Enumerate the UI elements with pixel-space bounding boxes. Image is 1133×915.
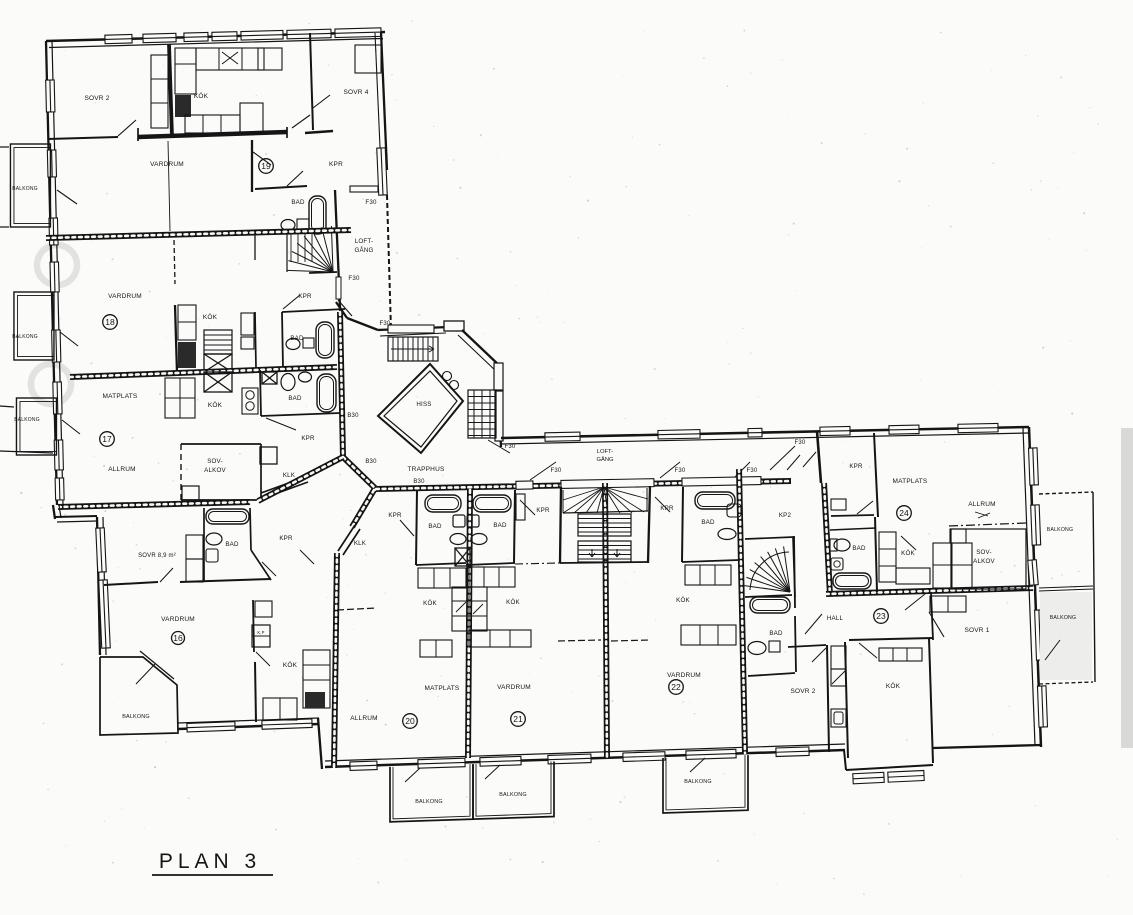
svg-text:SOV-: SOV- [976, 549, 992, 556]
svg-text:SOV-: SOV- [207, 458, 223, 465]
svg-text:21: 21 [513, 714, 523, 724]
svg-text:BAD: BAD [852, 545, 866, 552]
svg-text:PLAN 3: PLAN 3 [159, 850, 261, 873]
svg-text:22: 22 [671, 682, 681, 692]
svg-text:BALKONG: BALKONG [1050, 615, 1076, 621]
svg-text:VARDRUM: VARDRUM [161, 616, 195, 623]
svg-text:19: 19 [261, 161, 271, 171]
svg-text:F30: F30 [505, 444, 516, 450]
svg-text:GÅNG: GÅNG [596, 456, 614, 463]
svg-text:F30: F30 [551, 468, 562, 474]
svg-text:SOVR 8,9 m²: SOVR 8,9 m² [138, 553, 176, 559]
svg-text:BALKONG: BALKONG [415, 799, 442, 805]
svg-text:LOFT-: LOFT- [597, 449, 613, 455]
svg-text:KLK: KLK [283, 472, 296, 479]
svg-text:TRAPPHUS: TRAPPHUS [408, 466, 445, 473]
svg-text:BALKONG: BALKONG [684, 779, 711, 785]
svg-text:BAD: BAD [288, 395, 302, 402]
svg-text:KPR: KPR [301, 435, 315, 442]
svg-text:KÖK: KÖK [886, 682, 901, 690]
svg-text:BALKONG: BALKONG [1047, 527, 1073, 533]
svg-text:SOVR 1: SOVR 1 [964, 627, 989, 634]
svg-text:VARDRUM: VARDRUM [497, 684, 531, 691]
svg-text:B30: B30 [413, 479, 425, 485]
svg-text:SOVR 2: SOVR 2 [790, 688, 815, 695]
svg-text:MATPLATS: MATPLATS [103, 393, 138, 400]
svg-text:B30: B30 [365, 459, 377, 465]
svg-text:SOVR 2: SOVR 2 [84, 95, 109, 102]
svg-text:MATPLATS: MATPLATS [425, 685, 460, 692]
svg-text:KÖK: KÖK [208, 401, 223, 409]
svg-text:23: 23 [876, 611, 886, 621]
svg-text:KÖK: KÖK [423, 600, 437, 607]
svg-text:BAD: BAD [225, 541, 239, 548]
svg-text:VARDRUM: VARDRUM [108, 293, 142, 300]
svg-text:KÖK: KÖK [506, 599, 520, 606]
svg-text:BALKONG: BALKONG [12, 186, 38, 192]
svg-text:F30: F30 [348, 275, 360, 282]
svg-text:VARDRUM: VARDRUM [667, 672, 701, 679]
svg-text:BALKONG: BALKONG [122, 714, 149, 720]
svg-text:HALL: HALL [827, 615, 844, 622]
svg-text:BALKONG: BALKONG [499, 792, 526, 798]
svg-text:BALKONG: BALKONG [12, 334, 38, 340]
svg-text:ALLRUM: ALLRUM [968, 501, 996, 508]
svg-text:KPR: KPR [388, 512, 402, 519]
svg-text:ALKOV: ALKOV [204, 467, 226, 474]
svg-text:F30: F30 [365, 199, 377, 206]
svg-text:KPR: KPR [298, 293, 312, 300]
svg-text:BALKONG: BALKONG [14, 417, 40, 423]
svg-text:KPR: KPR [329, 161, 343, 168]
svg-text:ALLRUM: ALLRUM [108, 466, 136, 473]
svg-text:KP2: KP2 [779, 512, 792, 519]
svg-text:HISS: HISS [416, 401, 431, 408]
svg-text:MATPLATS: MATPLATS [893, 478, 928, 485]
svg-text:BAD: BAD [493, 522, 507, 529]
svg-text:F30: F30 [747, 468, 758, 474]
svg-text:24: 24 [899, 508, 909, 518]
svg-text:B30: B30 [347, 413, 359, 419]
svg-text:KPR: KPR [536, 507, 550, 514]
svg-text:KÖK: KÖK [194, 92, 209, 100]
svg-text:F30: F30 [380, 321, 391, 327]
svg-text:K,P: K,P [257, 630, 264, 635]
svg-text:F30: F30 [795, 440, 806, 446]
svg-text:VARDRUM: VARDRUM [150, 161, 184, 168]
svg-text:16: 16 [173, 633, 183, 643]
svg-text:KLK: KLK [354, 540, 367, 547]
svg-text:KPR: KPR [849, 463, 863, 470]
svg-text:BAD: BAD [701, 519, 715, 526]
svg-text:GÅNG: GÅNG [354, 247, 373, 254]
svg-text:KÖK: KÖK [283, 661, 298, 669]
svg-text:KPR: KPR [279, 535, 293, 542]
svg-text:ALKOV: ALKOV [973, 558, 995, 565]
svg-text:BAD: BAD [291, 199, 305, 206]
svg-text:BAD: BAD [428, 523, 442, 530]
svg-text:F30: F30 [675, 468, 686, 474]
svg-text:20: 20 [405, 716, 415, 726]
svg-text:17: 17 [102, 434, 112, 444]
svg-text:KÖK: KÖK [676, 597, 690, 604]
svg-text:KÖK: KÖK [203, 313, 218, 321]
svg-text:BAD: BAD [769, 630, 783, 637]
svg-text:SOVR 4: SOVR 4 [343, 89, 368, 96]
svg-text:ALLRUM: ALLRUM [350, 715, 378, 722]
svg-text:18: 18 [105, 317, 115, 327]
svg-text:KÖK: KÖK [901, 550, 915, 557]
svg-text:LOFT-: LOFT- [355, 238, 374, 245]
